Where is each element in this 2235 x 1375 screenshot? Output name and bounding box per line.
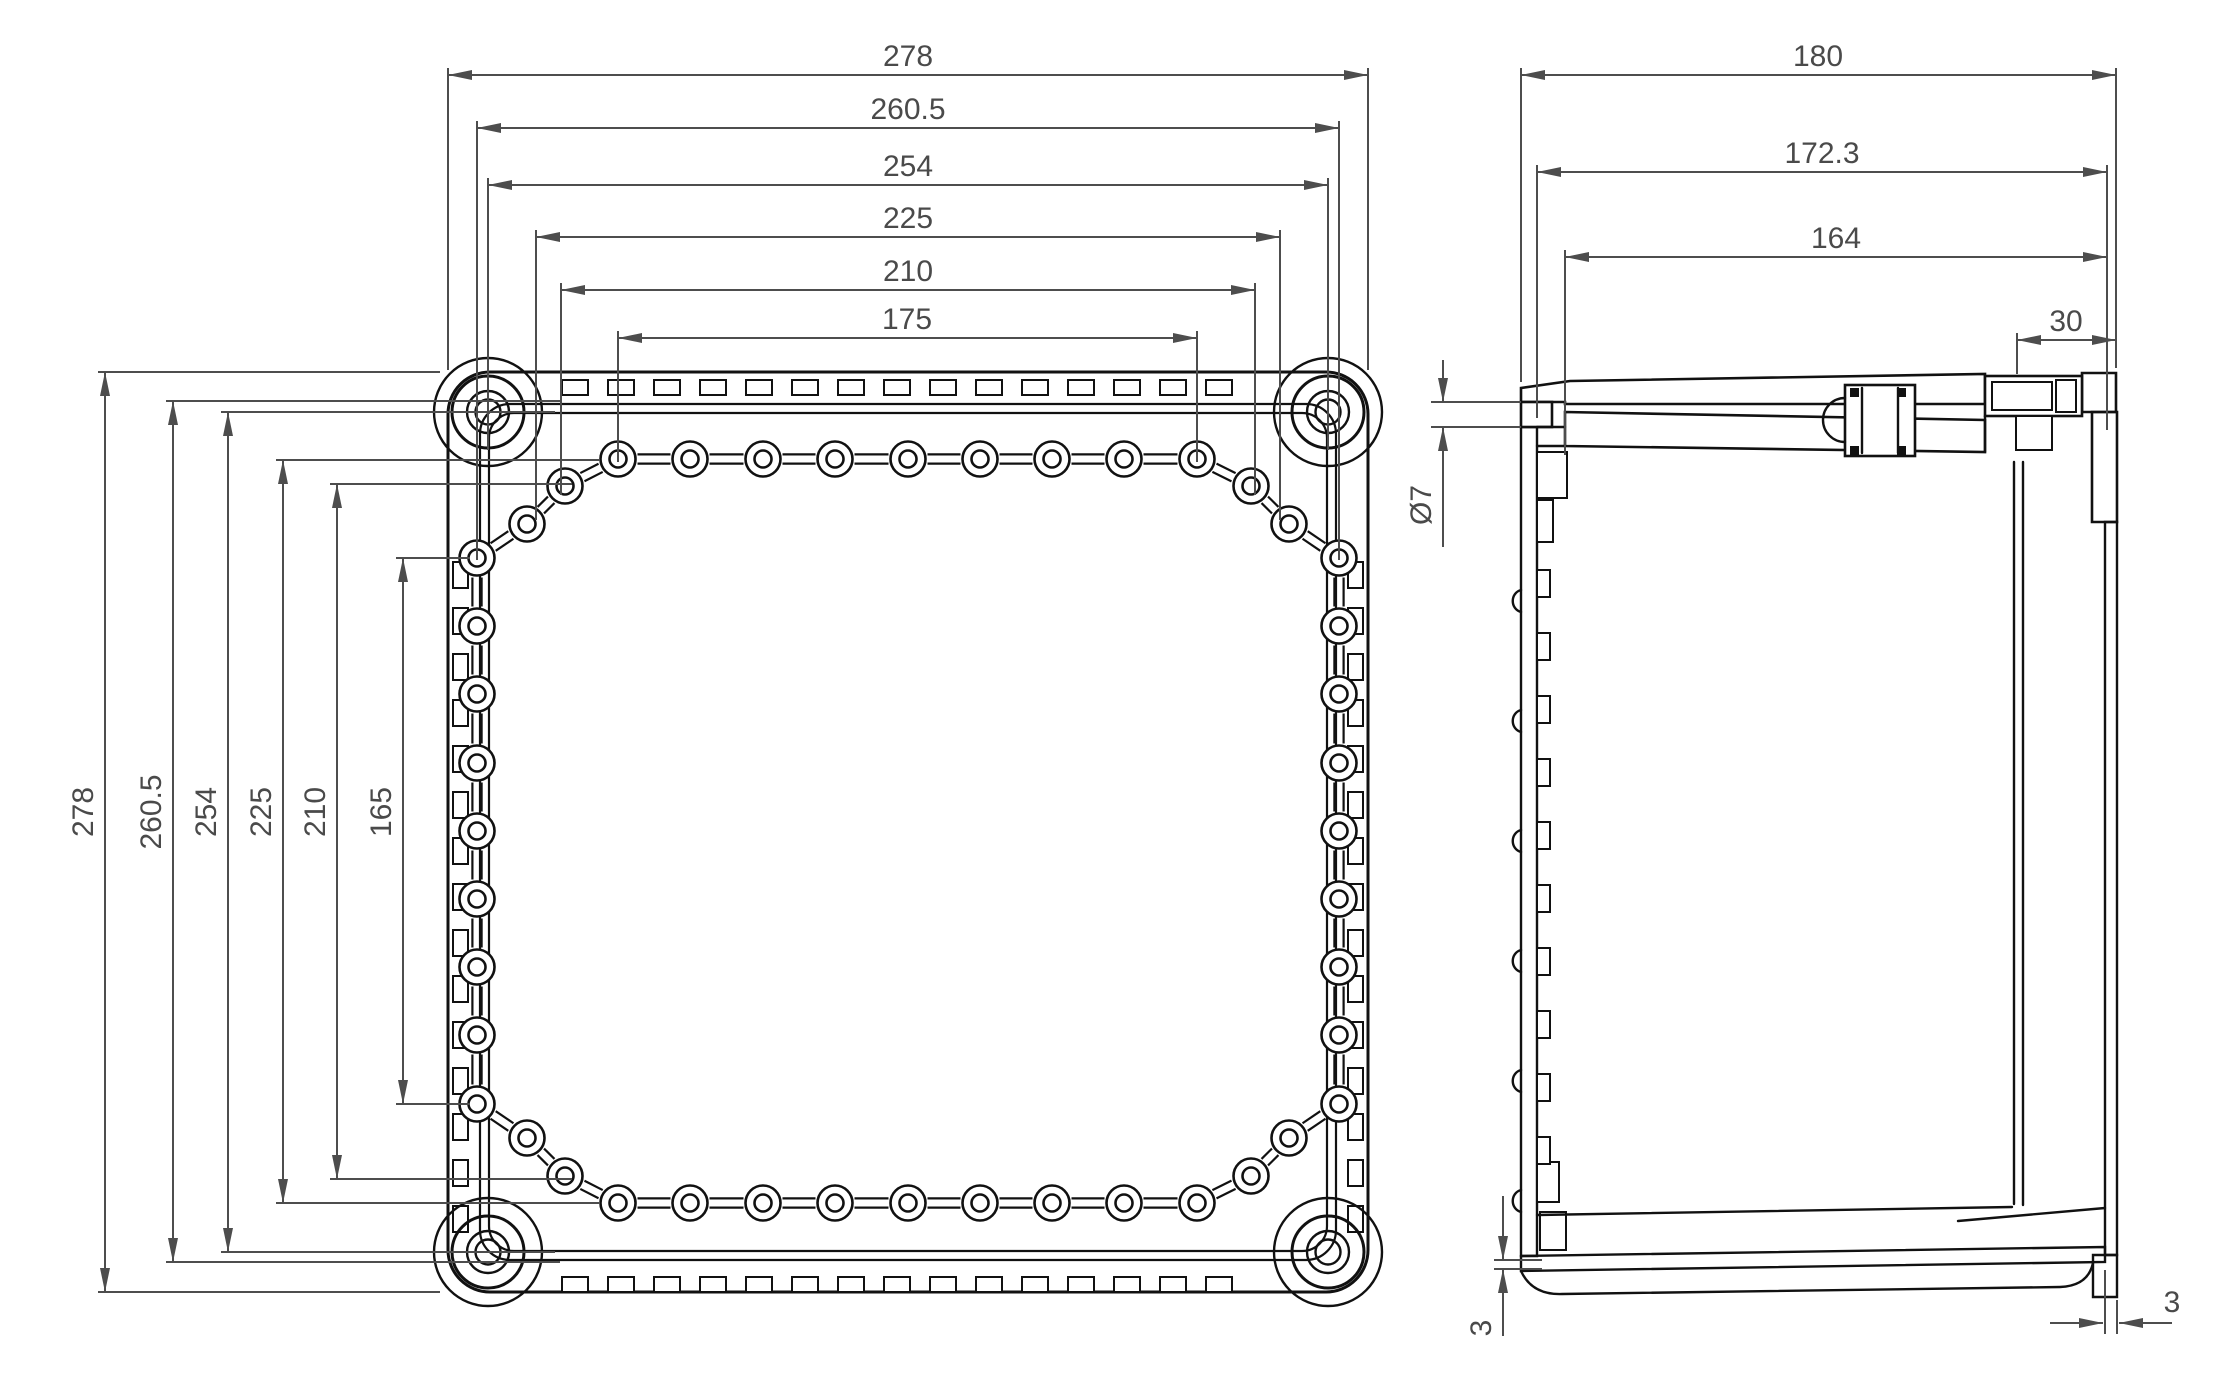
dim-label-plan-width-holes: 175 [882, 303, 932, 336]
mounting-boss [963, 442, 998, 477]
mounting-boss [1272, 1121, 1307, 1156]
wall-rib [1537, 1011, 1550, 1038]
boss-rib-line [1308, 531, 1326, 543]
mounting-boss [460, 814, 495, 849]
dim-label-plan-height-overall: 278 [67, 787, 100, 837]
dim-label-plan-height-holes: 165 [365, 787, 398, 837]
mounting-boss [1322, 882, 1357, 917]
boss-rib-line [1216, 1189, 1235, 1199]
wall-rib [1537, 885, 1550, 912]
dim-label-wall-thickness: 3 [2164, 1286, 2181, 1319]
wall-boss-pocket [1537, 452, 1567, 498]
wall-bump [1513, 710, 1521, 732]
mounting-boss [673, 442, 708, 477]
wall-bump [1513, 950, 1521, 972]
mounting-boss [1322, 1018, 1357, 1053]
boss-rib-line [584, 472, 602, 481]
mounting-boss [510, 1121, 545, 1156]
mounting-boss [1322, 814, 1357, 849]
dim-label-side-depth-overall: 180 [1793, 40, 1843, 73]
lid-tab [1022, 1277, 1048, 1292]
mounting-boss [1180, 1186, 1215, 1221]
lid-tab [930, 1277, 956, 1292]
wall-rib [1537, 570, 1550, 597]
lid-tab [1114, 1277, 1140, 1292]
mounting-boss [818, 442, 853, 477]
wall-boss-pocket [1540, 1212, 1566, 1250]
lid-inner-plate-section [1565, 412, 1985, 452]
boss-rib-line [496, 539, 514, 551]
lid-latch-catch [2056, 380, 2076, 412]
lid-tab [792, 1277, 818, 1292]
lid-tab [838, 380, 864, 395]
mounting-boss [1272, 507, 1307, 542]
bottom-wall-section [1521, 1247, 2105, 1271]
lid-tab [654, 380, 680, 395]
dim-label-plan-width-overall: 278 [883, 40, 933, 73]
lid-tab [884, 380, 910, 395]
dim-label-plan-height-lid: 260.5 [135, 774, 168, 849]
right-wall-section [2105, 522, 2117, 1255]
boss-rib-line [491, 1119, 509, 1131]
boss-rib-line [544, 1149, 554, 1159]
mounting-boss [963, 1186, 998, 1221]
boss-rib-line [1303, 1111, 1321, 1123]
dimension-annotations: 278 260.5 254 225 210 175 278 260.5 254 … [67, 40, 2180, 1336]
lid-castellation-tabs [453, 380, 1363, 1292]
lid-tab [1160, 380, 1186, 395]
dim-label-hole-diameter: Ø7 [1405, 485, 1438, 525]
mounting-boss [746, 442, 781, 477]
mounting-boss [548, 1159, 583, 1194]
boss-rib-line [1308, 1119, 1326, 1131]
corner-screw-hole [1316, 1240, 1341, 1265]
mounting-boss [510, 507, 545, 542]
dim-label-plan-height-screws: 254 [190, 787, 223, 837]
boss-rib-line [1262, 1149, 1272, 1159]
boss-rib-line [1303, 539, 1321, 551]
mounting-boss [1322, 950, 1357, 985]
dim-label-plan-height-225: 225 [245, 787, 278, 837]
lid-tab [1160, 1277, 1186, 1292]
lid-tab [453, 1160, 468, 1186]
lid-tab [700, 380, 726, 395]
lid-latch-lower [2016, 416, 2052, 450]
lid-seal-line-inner [489, 413, 1327, 1251]
lid-tab [453, 654, 468, 680]
mounting-boss [1322, 609, 1357, 644]
lid-seal-line-outer [480, 404, 1336, 1260]
lid-tab [1348, 1160, 1363, 1186]
boss-rib-line [1268, 497, 1278, 507]
lid-tab [654, 1277, 680, 1292]
lid-tab [1348, 792, 1363, 818]
boss-rib-line [584, 1181, 602, 1190]
wall-rib [1537, 1137, 1550, 1164]
lid-tab [1114, 380, 1140, 395]
boss-rib-line [1268, 1155, 1278, 1165]
mounting-boss [548, 469, 583, 504]
dim-label-plan-height-210: 210 [299, 787, 332, 837]
mounting-boss [460, 950, 495, 985]
dim-label-plan-width-lid: 260.5 [870, 93, 945, 126]
screw-thread-mark [1850, 446, 1859, 455]
lid-tab [1068, 1277, 1094, 1292]
wall-ribs [1537, 570, 1550, 1164]
boss-rib-line [538, 497, 548, 507]
dimension-lines [98, 68, 2172, 1336]
mounting-boss [1322, 1087, 1357, 1122]
wall-outer-bumps [1513, 590, 1521, 1212]
wall-bump [1513, 590, 1521, 612]
inner-floor-draft-line [1958, 1208, 2105, 1221]
lid-corner-section [2082, 373, 2116, 412]
screw-thread-mark [1850, 388, 1859, 397]
wall-rib [1537, 696, 1550, 723]
lid-tab [746, 380, 772, 395]
lid-tab [453, 792, 468, 818]
mounting-boss [891, 442, 926, 477]
wall-boss-pocket [1537, 500, 1553, 542]
boss-rib-line [544, 503, 554, 513]
lid-tab [1348, 654, 1363, 680]
lid-tab [1206, 1277, 1232, 1292]
mounting-boss-holes [460, 442, 1357, 1221]
drawing-canvas: 278 260.5 254 225 210 175 278 260.5 254 … [0, 0, 2235, 1375]
lid-tab [1206, 380, 1232, 395]
screw-thread-mark [1897, 446, 1906, 455]
lid-tab [562, 380, 588, 395]
mounting-boss [460, 677, 495, 712]
mounting-boss [1035, 1186, 1070, 1221]
boss-rib-line [496, 1111, 514, 1123]
plan-view [434, 358, 1382, 1306]
lid-tab [608, 1277, 634, 1292]
corner-boss-counterbore [1307, 1231, 1349, 1273]
lid-tab [976, 1277, 1002, 1292]
wall-rib [1537, 1074, 1550, 1101]
wall-bump [1513, 1070, 1521, 1092]
dim-label-side-screw-offset: 30 [2049, 305, 2082, 338]
wall-boss-pocket [1537, 1162, 1559, 1202]
lid-tab [1022, 380, 1048, 395]
lid-tab [608, 380, 634, 395]
boss-rib-line [491, 531, 509, 543]
mounting-boss [460, 746, 495, 781]
boss-rib-line [538, 1155, 548, 1165]
enclosure-outer-edge [448, 372, 1368, 1292]
mounting-boss [673, 1186, 708, 1221]
lid-tab [1068, 380, 1094, 395]
mounting-boss [1234, 469, 1269, 504]
mounting-boss [1322, 746, 1357, 781]
mounting-boss [1234, 1159, 1269, 1194]
dim-label-plan-width-screws: 254 [883, 150, 933, 183]
wall-bump [1513, 1190, 1521, 1212]
mounting-boss [601, 1186, 636, 1221]
mounting-boss [818, 1186, 853, 1221]
side-section-view [1513, 373, 2117, 1297]
mounting-boss [1107, 1186, 1142, 1221]
lid-tab [792, 380, 818, 395]
dim-label-side-depth-inner: 172.3 [1784, 137, 1859, 170]
lid-tab [884, 1277, 910, 1292]
lid-tab [746, 1277, 772, 1292]
lid-tab [562, 1277, 588, 1292]
boss-rib-line [1216, 464, 1235, 474]
boss-rib-line [1212, 472, 1231, 482]
mounting-boss [460, 609, 495, 644]
dim-label-plan-width-225: 225 [883, 202, 933, 235]
mounting-boss [460, 1018, 495, 1053]
wall-rib [1537, 633, 1550, 660]
lid-tab [838, 1277, 864, 1292]
mounting-boss [746, 1186, 781, 1221]
boss-rib-line [580, 1189, 598, 1198]
left-wall-section [1521, 427, 1537, 1256]
lid-tab [930, 380, 956, 395]
screw-thread-mark [1897, 388, 1906, 397]
boss-rib-line [1262, 503, 1272, 513]
dim-label-bottom-thickness: 3 [1465, 1320, 1498, 1337]
mounting-boss [1035, 442, 1070, 477]
boss-rib-line [580, 464, 598, 473]
dim-label-plan-width-210: 210 [883, 255, 933, 288]
wall-rib [1537, 759, 1550, 786]
wall-rib [1537, 822, 1550, 849]
wall-bump [1513, 830, 1521, 852]
dim-label-side-depth-usable: 164 [1811, 222, 1861, 255]
lid-latch-slot [1992, 382, 2052, 410]
wall-rib [1537, 948, 1550, 975]
right-wall-top-section [2092, 412, 2117, 522]
mounting-boss [1107, 442, 1142, 477]
mounting-boss [1322, 677, 1357, 712]
lid-tab [700, 1277, 726, 1292]
inner-floor-line [1537, 1207, 2012, 1215]
mounting-boss [891, 1186, 926, 1221]
boss-rib-line [1212, 1181, 1231, 1191]
mounting-boss [460, 882, 495, 917]
lid-tab [976, 380, 1002, 395]
